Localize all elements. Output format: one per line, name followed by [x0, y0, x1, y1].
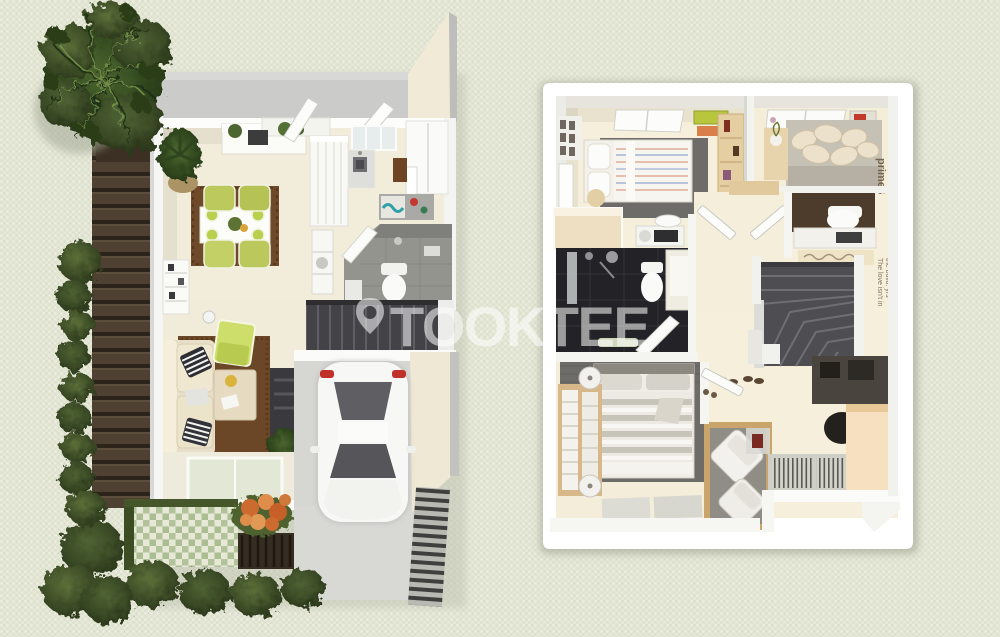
svg-text:TOOKTEE: TOOKTEE [390, 295, 649, 358]
svg-text:The love isn't in: The love isn't in [876, 258, 883, 307]
